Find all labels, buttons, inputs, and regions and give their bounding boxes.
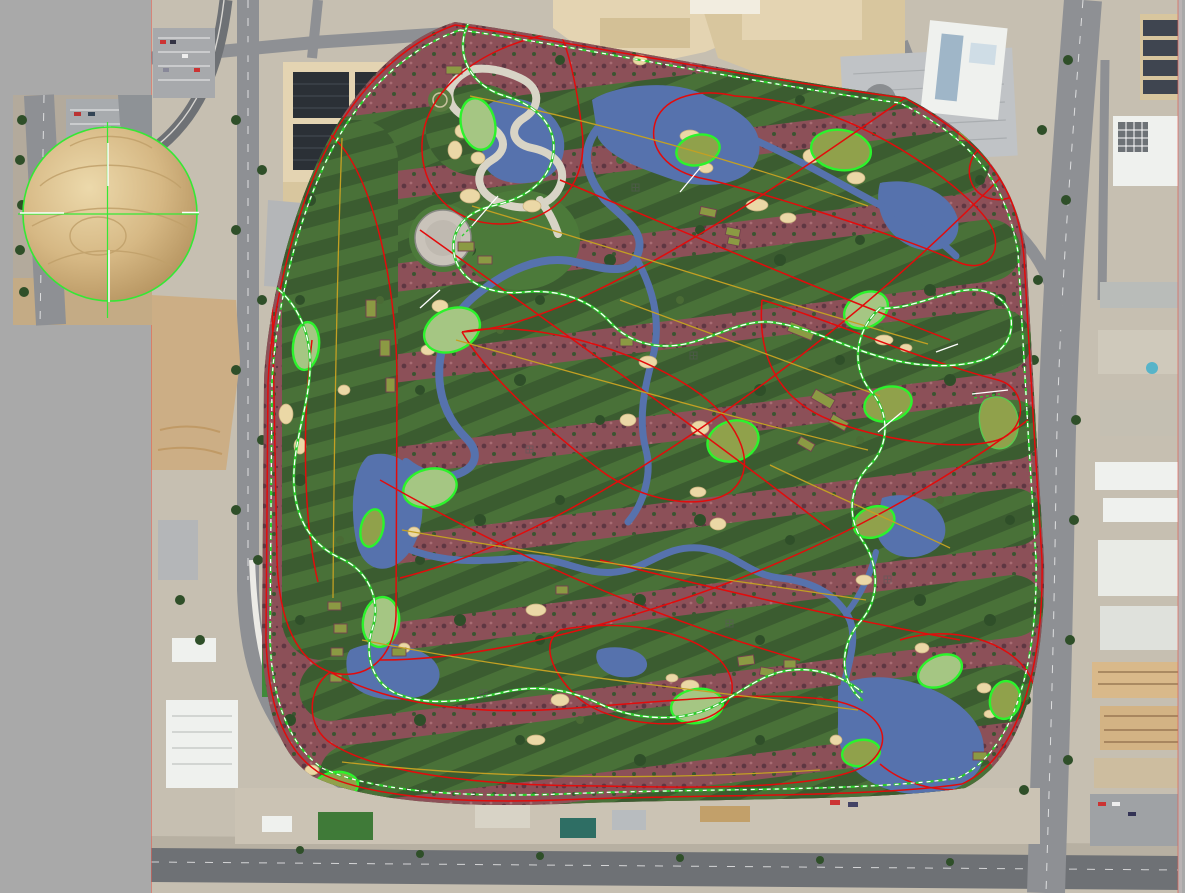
white-tower — [920, 20, 1007, 120]
map-canvas[interactable] — [0, 0, 1185, 893]
image-edge-strip — [1178, 0, 1182, 893]
main-satellite-image[interactable] — [151, 0, 1185, 893]
round-tank — [409, 204, 477, 272]
golf-course[interactable] — [230, 0, 1086, 879]
application-window: { "window": { "type": "map-canvas", "des… — [0, 0, 1185, 893]
